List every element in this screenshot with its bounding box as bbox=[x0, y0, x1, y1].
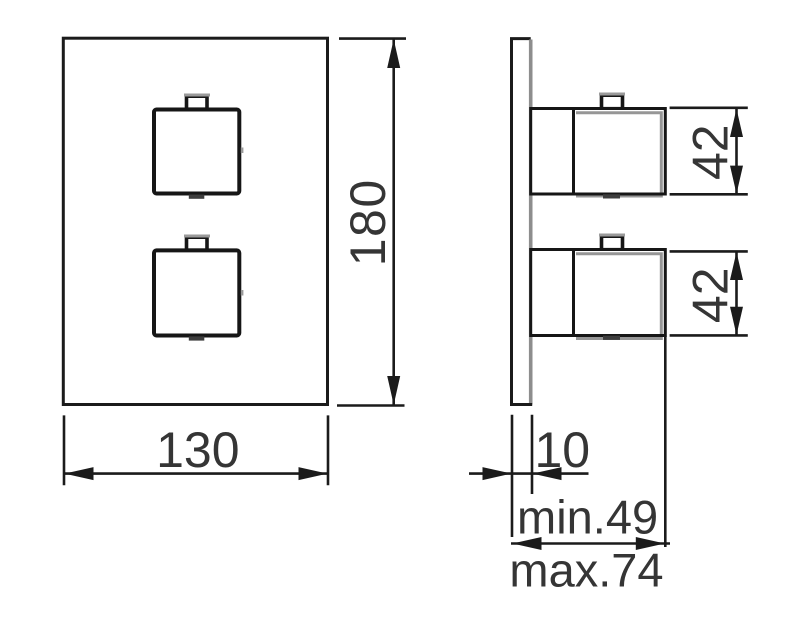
svg-text:42: 42 bbox=[683, 124, 739, 180]
svg-text:130: 130 bbox=[156, 422, 239, 478]
svg-text:10: 10 bbox=[534, 422, 590, 478]
svg-text:min.49: min.49 bbox=[517, 491, 658, 544]
svg-text:42: 42 bbox=[683, 267, 739, 323]
svg-text:max.74: max.74 bbox=[509, 543, 663, 596]
svg-text:180: 180 bbox=[340, 178, 396, 266]
